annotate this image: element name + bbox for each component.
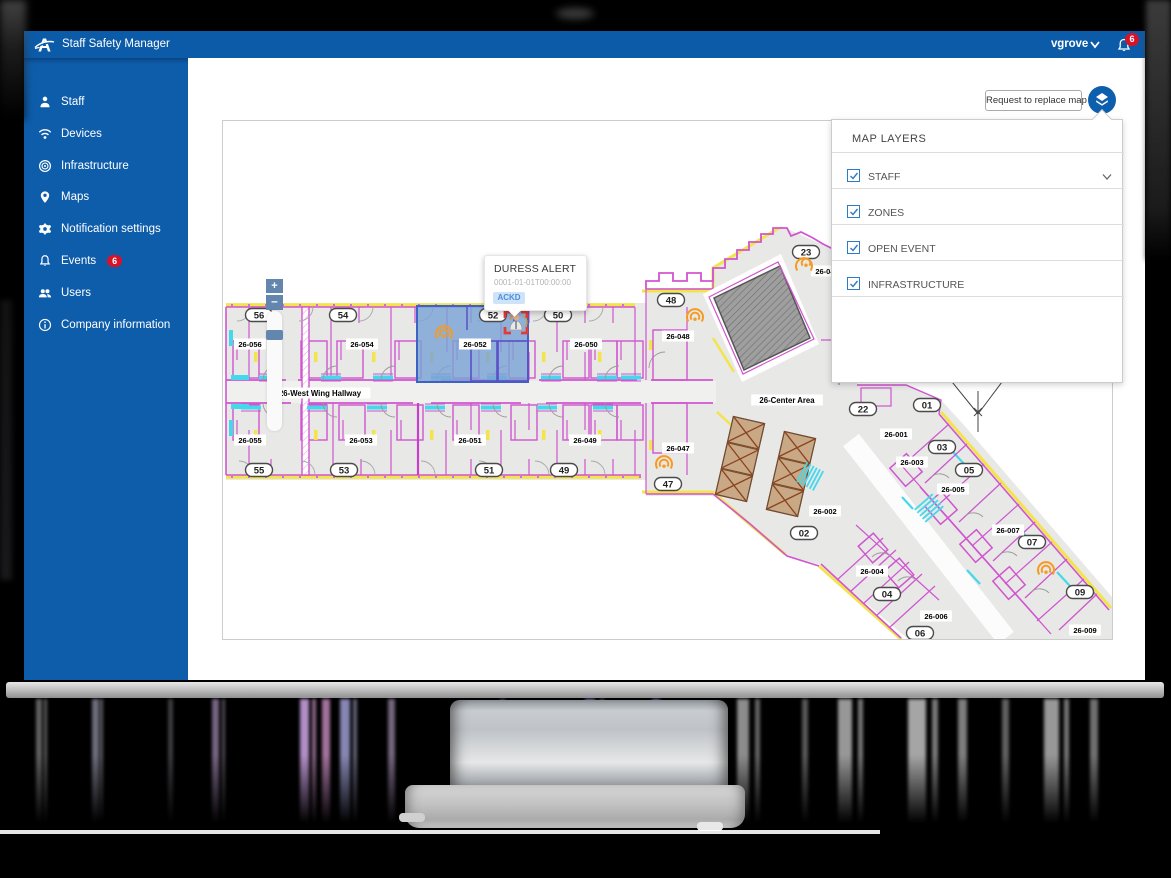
svg-text:26-002: 26-002 [813, 507, 836, 516]
svg-text:26-049: 26-049 [573, 436, 596, 445]
svg-text:05: 05 [964, 466, 975, 477]
svg-text:48: 48 [666, 296, 677, 307]
svg-text:09: 09 [1075, 588, 1086, 599]
svg-text:02: 02 [799, 529, 810, 540]
svg-text:51: 51 [484, 466, 495, 477]
svg-text:26-001: 26-001 [884, 430, 907, 439]
svg-text:50: 50 [553, 311, 564, 322]
svg-text:06: 06 [915, 629, 926, 639]
svg-text:26-004: 26-004 [860, 567, 884, 576]
svg-text:26-050: 26-050 [574, 340, 597, 349]
svg-text:26-006: 26-006 [924, 612, 947, 621]
svg-text:26-009: 26-009 [1073, 626, 1096, 635]
svg-text:52: 52 [488, 311, 499, 322]
svg-text:23: 23 [801, 248, 812, 259]
svg-text:07: 07 [1027, 538, 1038, 549]
svg-text:26-054: 26-054 [350, 340, 374, 349]
svg-text:49: 49 [559, 466, 570, 477]
svg-text:26-048: 26-048 [666, 332, 689, 341]
svg-text:56: 56 [254, 311, 265, 322]
svg-text:26-007: 26-007 [996, 526, 1019, 535]
svg-text:26-056: 26-056 [238, 340, 261, 349]
svg-text:03: 03 [937, 443, 948, 454]
svg-text:22: 22 [858, 405, 869, 416]
svg-text:47: 47 [663, 480, 674, 491]
svg-text:26-053: 26-053 [349, 436, 372, 445]
svg-text:53: 53 [339, 466, 350, 477]
svg-text:26-051: 26-051 [458, 436, 481, 445]
svg-text:54: 54 [338, 311, 349, 322]
svg-text:04: 04 [882, 590, 893, 601]
svg-text:26-055: 26-055 [238, 436, 261, 445]
svg-text:01: 01 [922, 401, 933, 412]
svg-text:55: 55 [254, 466, 265, 477]
svg-text:26-052: 26-052 [463, 340, 486, 349]
svg-text:26-Center Area: 26-Center Area [759, 396, 815, 405]
svg-text:26-West Wing Hallway: 26-West Wing Hallway [279, 389, 362, 398]
svg-text:26-003: 26-003 [900, 458, 923, 467]
svg-text:26-047: 26-047 [666, 444, 689, 453]
svg-text:26-005: 26-005 [941, 485, 964, 494]
